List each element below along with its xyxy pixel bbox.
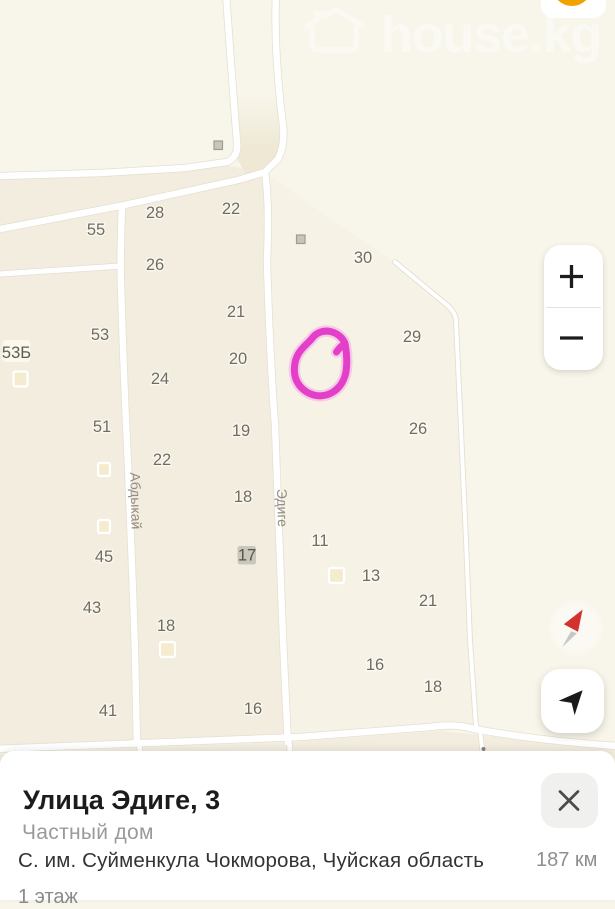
svg-text:30: 30 [354, 249, 372, 267]
svg-text:16: 16 [366, 656, 384, 674]
svg-text:41: 41 [99, 702, 117, 720]
svg-text:29: 29 [403, 328, 421, 346]
svg-text:Абдыкай: Абдыкай [127, 472, 144, 529]
svg-text:17: 17 [238, 547, 256, 565]
svg-text:19: 19 [232, 422, 250, 440]
svg-text:20: 20 [229, 350, 247, 368]
svg-text:55: 55 [87, 221, 105, 239]
svg-text:51: 51 [93, 418, 111, 436]
svg-text:16: 16 [244, 700, 262, 718]
svg-text:53: 53 [91, 326, 109, 344]
svg-text:24: 24 [151, 370, 169, 388]
svg-text:21: 21 [419, 592, 437, 610]
svg-text:18: 18 [157, 617, 175, 635]
svg-text:26: 26 [409, 420, 427, 438]
svg-text:22: 22 [153, 451, 171, 469]
svg-text:26: 26 [146, 256, 164, 274]
svg-text:Эдиге: Эдиге [274, 489, 291, 528]
svg-text:45: 45 [95, 548, 113, 566]
svg-text:22: 22 [222, 200, 240, 218]
svg-text:53Б: 53Б [2, 344, 31, 362]
svg-text:28: 28 [146, 204, 164, 222]
svg-text:18: 18 [234, 488, 252, 506]
svg-text:11: 11 [311, 532, 328, 550]
svg-text:43: 43 [83, 599, 101, 617]
svg-text:18: 18 [424, 678, 442, 696]
svg-text:13: 13 [362, 567, 380, 585]
svg-text:21: 21 [227, 303, 245, 321]
